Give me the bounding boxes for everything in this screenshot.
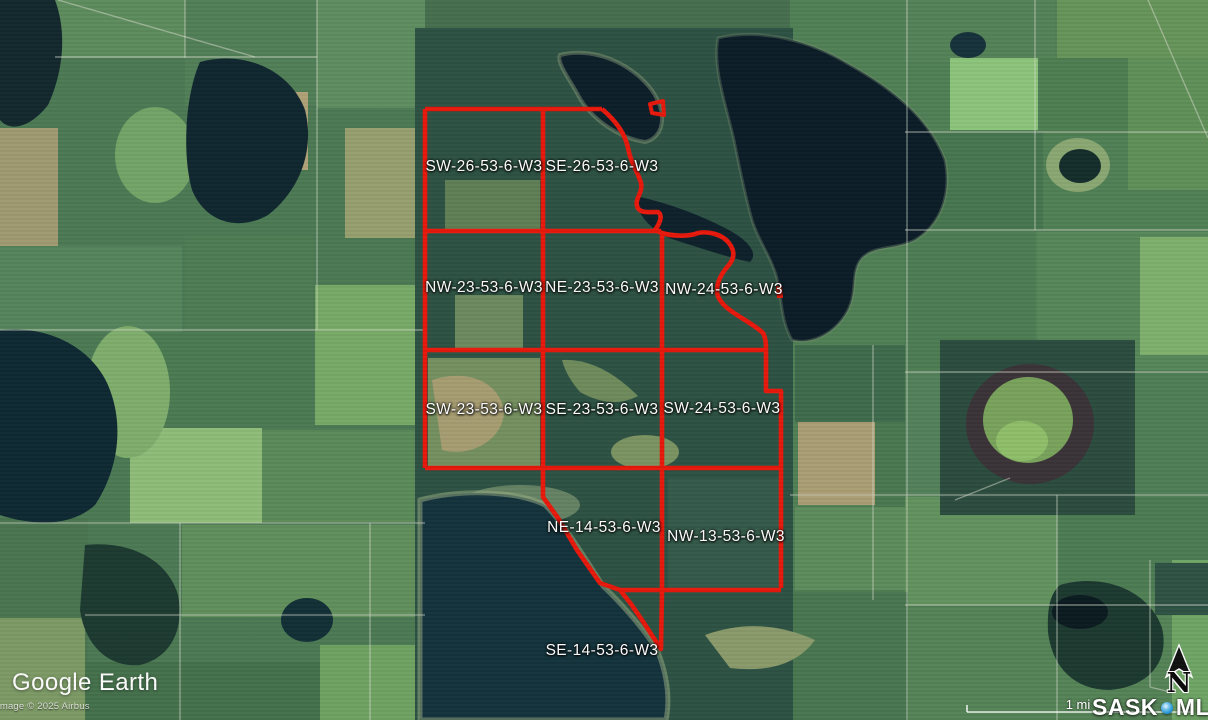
- satellite-imagery: [0, 0, 1208, 720]
- imagery-attribution: Image © 2025 Airbus: [0, 701, 90, 712]
- mls-dot-icon: [1161, 702, 1173, 714]
- google-earth-logo: Google Earth: [12, 669, 158, 697]
- parcel-label-sw-24: SW-24-53-6-W3: [664, 400, 781, 418]
- watermark-sask-text: SASK: [1092, 694, 1158, 720]
- sask-mls-watermark: SASK MLS ®: [1092, 694, 1208, 720]
- scale-label: 1 mi: [1066, 697, 1091, 712]
- parcel-label-ne-23: NE-23-53-6-W3: [545, 279, 659, 297]
- parcel-label-nw-23: NW-23-53-6-W3: [425, 279, 543, 297]
- parcel-label-ne-14: NE-14-53-6-W3: [547, 519, 661, 537]
- parcel-label-se-14: SE-14-53-6-W3: [546, 642, 659, 660]
- watermark-mls-text: MLS: [1176, 694, 1208, 720]
- parcel-label-sw-26: SW-26-53-6-W3: [426, 158, 543, 176]
- parcel-label-se-23: SE-23-53-6-W3: [546, 401, 659, 419]
- parcel-label-sw-23: SW-23-53-6-W3: [426, 401, 543, 419]
- map-screenshot: SW-26-53-6-W3 SE-26-53-6-W3 NW-23-53-6-W…: [0, 0, 1208, 720]
- parcel-label-nw-24: NW-24-53-6-W3: [665, 281, 783, 299]
- parcel-label-nw-13: NW-13-53-6-W3: [667, 528, 785, 546]
- parcel-label-se-26: SE-26-53-6-W3: [546, 158, 659, 176]
